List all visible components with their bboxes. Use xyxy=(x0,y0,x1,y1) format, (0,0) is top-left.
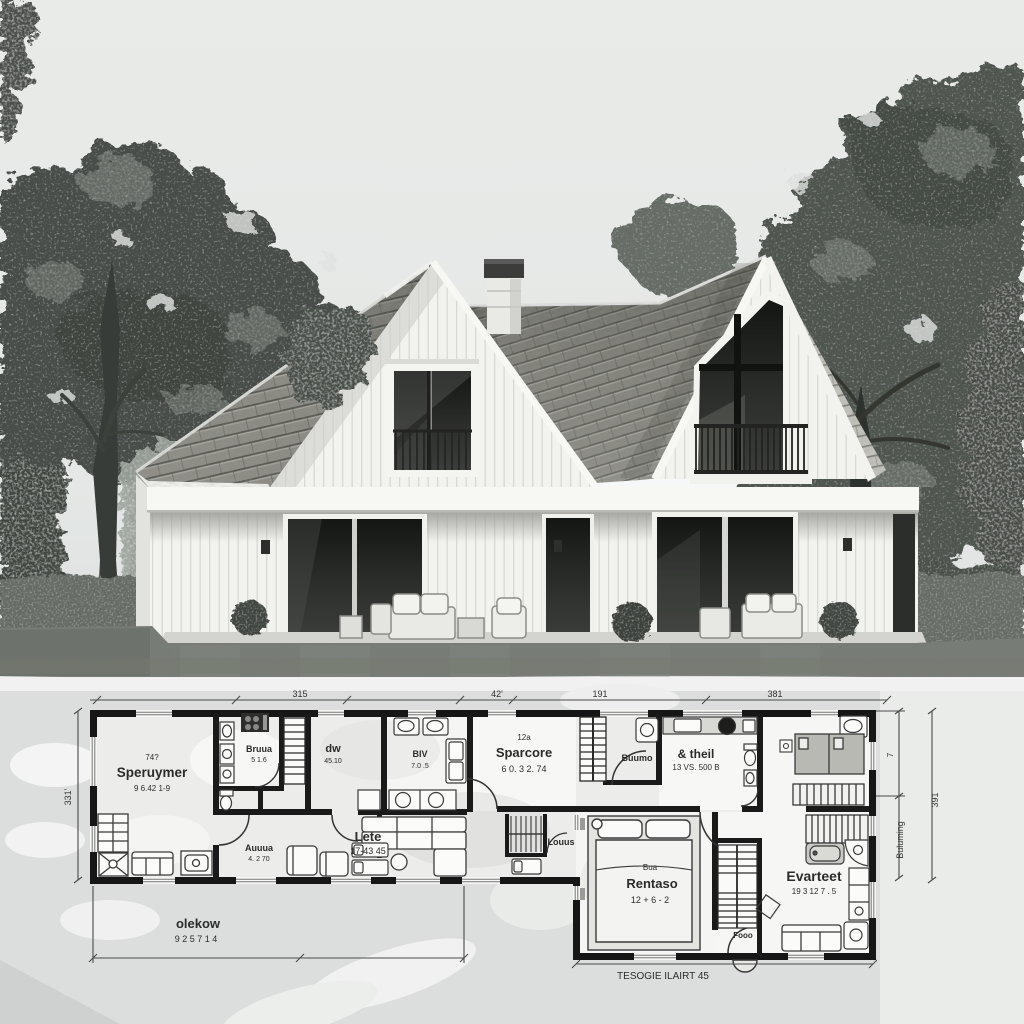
svg-text:5 1.6: 5 1.6 xyxy=(251,757,267,764)
svg-text:7: 7 xyxy=(886,752,895,757)
svg-text:TESOGIE ILAIRT 45: TESOGIE ILAIRT 45 xyxy=(617,971,709,982)
svg-text:Rentaso: Rentaso xyxy=(626,876,677,891)
svg-text:Speruymer: Speruymer xyxy=(117,765,188,780)
svg-text:& theil: & theil xyxy=(678,747,715,761)
svg-text:9 2 5 7 1 4: 9 2 5 7 1 4 xyxy=(175,934,218,944)
svg-text:12 + 6 - 2: 12 + 6 - 2 xyxy=(631,895,669,905)
svg-text:Buumo: Buumo xyxy=(622,753,653,763)
svg-text:Buluming: Buluming xyxy=(895,821,905,859)
svg-text:BIV: BIV xyxy=(412,749,427,759)
svg-text:Auuua: Auuua xyxy=(245,843,274,853)
svg-text:381: 381 xyxy=(767,689,782,699)
svg-text:191: 191 xyxy=(592,689,607,699)
svg-text:Fooo: Fooo xyxy=(733,931,753,940)
svg-text:12a: 12a xyxy=(517,733,531,742)
svg-text:Louus: Louus xyxy=(548,837,575,847)
svg-text:9 6.42 1-9: 9 6.42 1-9 xyxy=(134,784,171,793)
svg-text:dw: dw xyxy=(325,743,341,755)
svg-text:Evarteet: Evarteet xyxy=(786,868,842,884)
svg-text:74?: 74? xyxy=(145,753,159,762)
svg-text:7.0 .5: 7.0 .5 xyxy=(411,763,429,770)
svg-text:19 3 12 7 . 5: 19 3 12 7 . 5 xyxy=(792,887,837,896)
svg-text:45.10: 45.10 xyxy=(324,758,342,765)
svg-text:olekow: olekow xyxy=(176,916,221,931)
svg-text:17-43 45: 17-43 45 xyxy=(350,846,386,856)
svg-text:Bruua: Bruua xyxy=(246,744,273,754)
svg-text:Bua: Bua xyxy=(643,863,658,872)
svg-text:4. 2 70: 4. 2 70 xyxy=(248,856,270,863)
svg-text:Sparcore: Sparcore xyxy=(496,745,552,760)
svg-text:331ʹ: 331ʹ xyxy=(63,788,73,805)
svg-text:391: 391 xyxy=(930,792,940,807)
svg-text:315: 315 xyxy=(292,689,307,699)
svg-text:42ʹ: 42ʹ xyxy=(491,689,503,699)
svg-text:6 0. 3 2. 74: 6 0. 3 2. 74 xyxy=(501,764,546,774)
svg-text:Lete: Lete xyxy=(355,829,382,844)
svg-text:13 VS. 500 B: 13 VS. 500 B xyxy=(672,763,719,772)
